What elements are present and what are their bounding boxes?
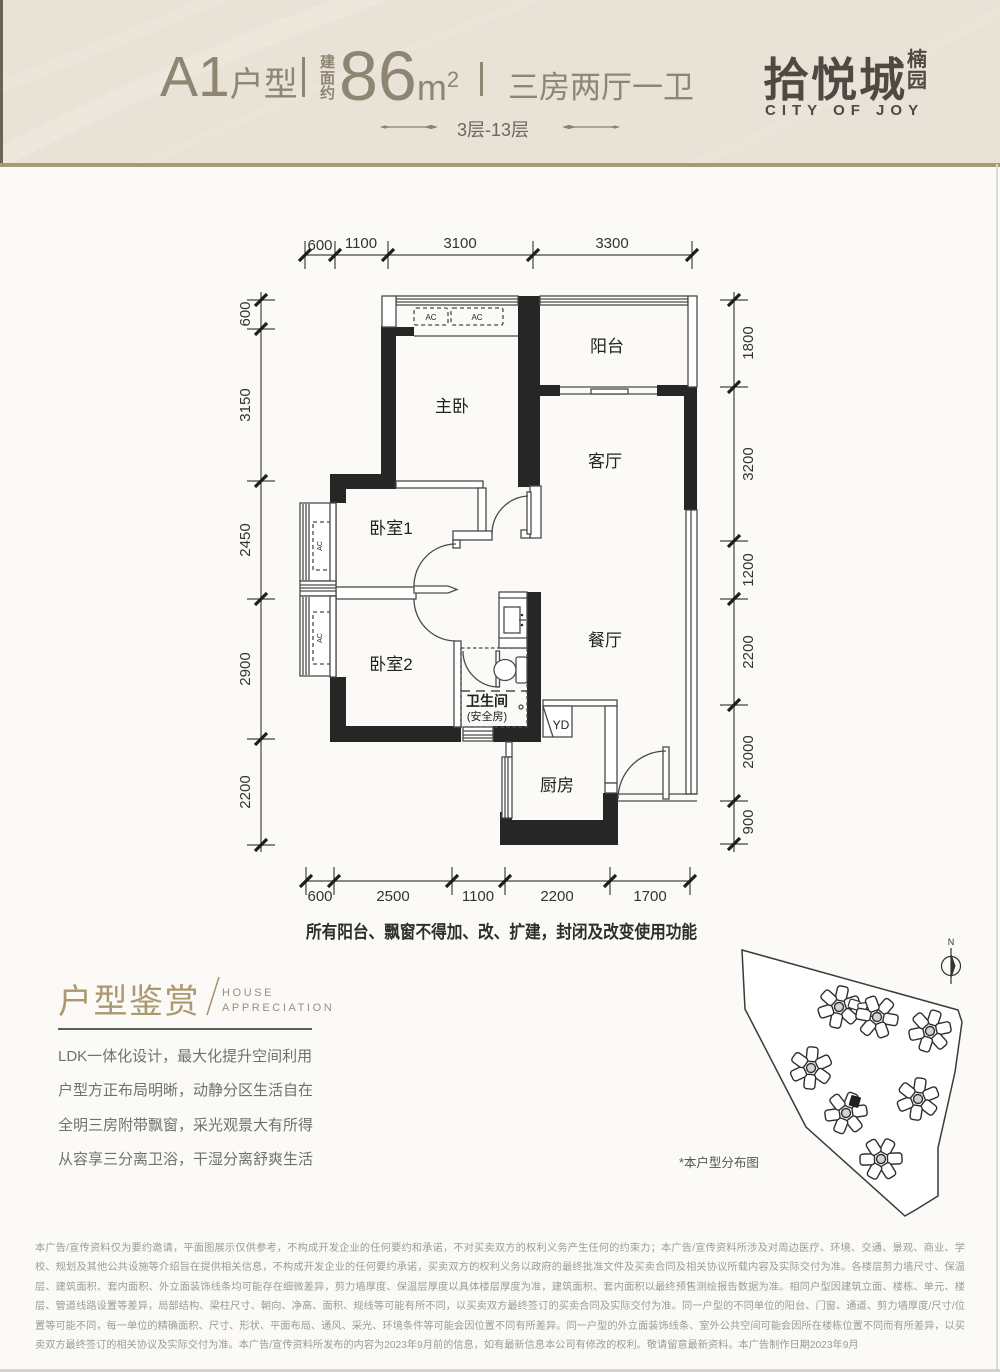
svg-text:600: 600 [237,301,254,326]
svg-text:AC: AC [317,633,324,643]
svg-text:AC: AC [317,541,324,551]
svg-text:3100: 3100 [443,235,476,252]
svg-text:2000: 2000 [740,735,757,768]
svg-text:(安全房): (安全房) [467,709,507,723]
svg-text:餐厅: 餐厅 [588,631,622,650]
svg-text:2900: 2900 [237,652,254,685]
svg-text:2200: 2200 [540,888,573,905]
svg-text:1200: 1200 [740,553,757,586]
svg-text:600: 600 [307,888,332,905]
svg-text:所有阳台、飘窗不得加、改、扩建，封闭及改变使用功能: 所有阳台、飘窗不得加、改、扩建，封闭及改变使用功能 [306,922,697,942]
svg-text:3150: 3150 [237,388,254,421]
svg-text:主卧: 主卧 [435,397,469,416]
svg-text:卫生间: 卫生间 [466,693,508,709]
svg-text:900: 900 [740,809,757,834]
svg-text:2200: 2200 [740,635,757,668]
svg-text:3300: 3300 [595,235,628,252]
svg-text:厨房: 厨房 [540,776,574,795]
svg-text:2450: 2450 [237,523,254,556]
svg-text:2200: 2200 [237,775,254,808]
svg-text:2500: 2500 [376,888,409,905]
svg-text:*本户型分布图: *本户型分布图 [679,1155,759,1170]
svg-text:卧室2: 卧室2 [369,655,412,674]
svg-text:AC: AC [471,313,482,322]
svg-text:阳台: 阳台 [590,337,624,356]
svg-text:N: N [948,937,955,947]
svg-text:1800: 1800 [740,326,757,359]
svg-text:AC: AC [425,313,436,322]
svg-text:3200: 3200 [740,447,757,480]
svg-text:1100: 1100 [462,888,494,905]
svg-text:客厅: 客厅 [588,452,622,471]
svg-text:1700: 1700 [633,888,666,905]
svg-text:卧室1: 卧室1 [369,519,412,538]
svg-text:YD: YD [553,718,570,732]
svg-text:600: 600 [307,237,332,254]
svg-text:1100: 1100 [345,235,377,252]
